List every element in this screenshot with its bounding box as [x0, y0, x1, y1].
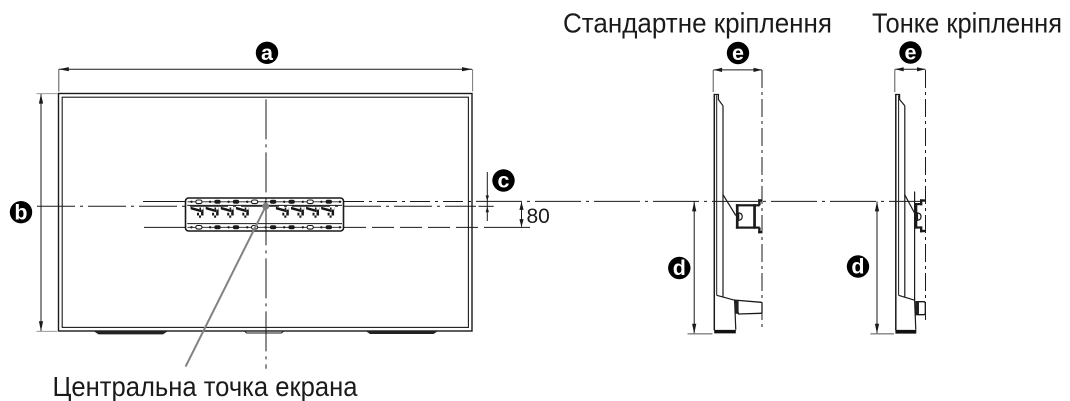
svg-text:e: e	[905, 41, 917, 65]
svg-text:b: b	[14, 200, 27, 224]
svg-text:c: c	[498, 169, 510, 193]
svg-text:Тонке кріплення: Тонке кріплення	[872, 8, 1062, 39]
svg-text:Центральна точка екрана: Центральна точка екрана	[53, 371, 358, 401]
svg-text:e: e	[732, 41, 744, 65]
svg-text:a: a	[261, 41, 274, 65]
svg-text:80: 80	[527, 205, 550, 228]
svg-text:d: d	[673, 256, 686, 280]
svg-text:d: d	[851, 255, 864, 279]
svg-text:Стандартне кріплення: Стандартне кріплення	[563, 8, 832, 39]
